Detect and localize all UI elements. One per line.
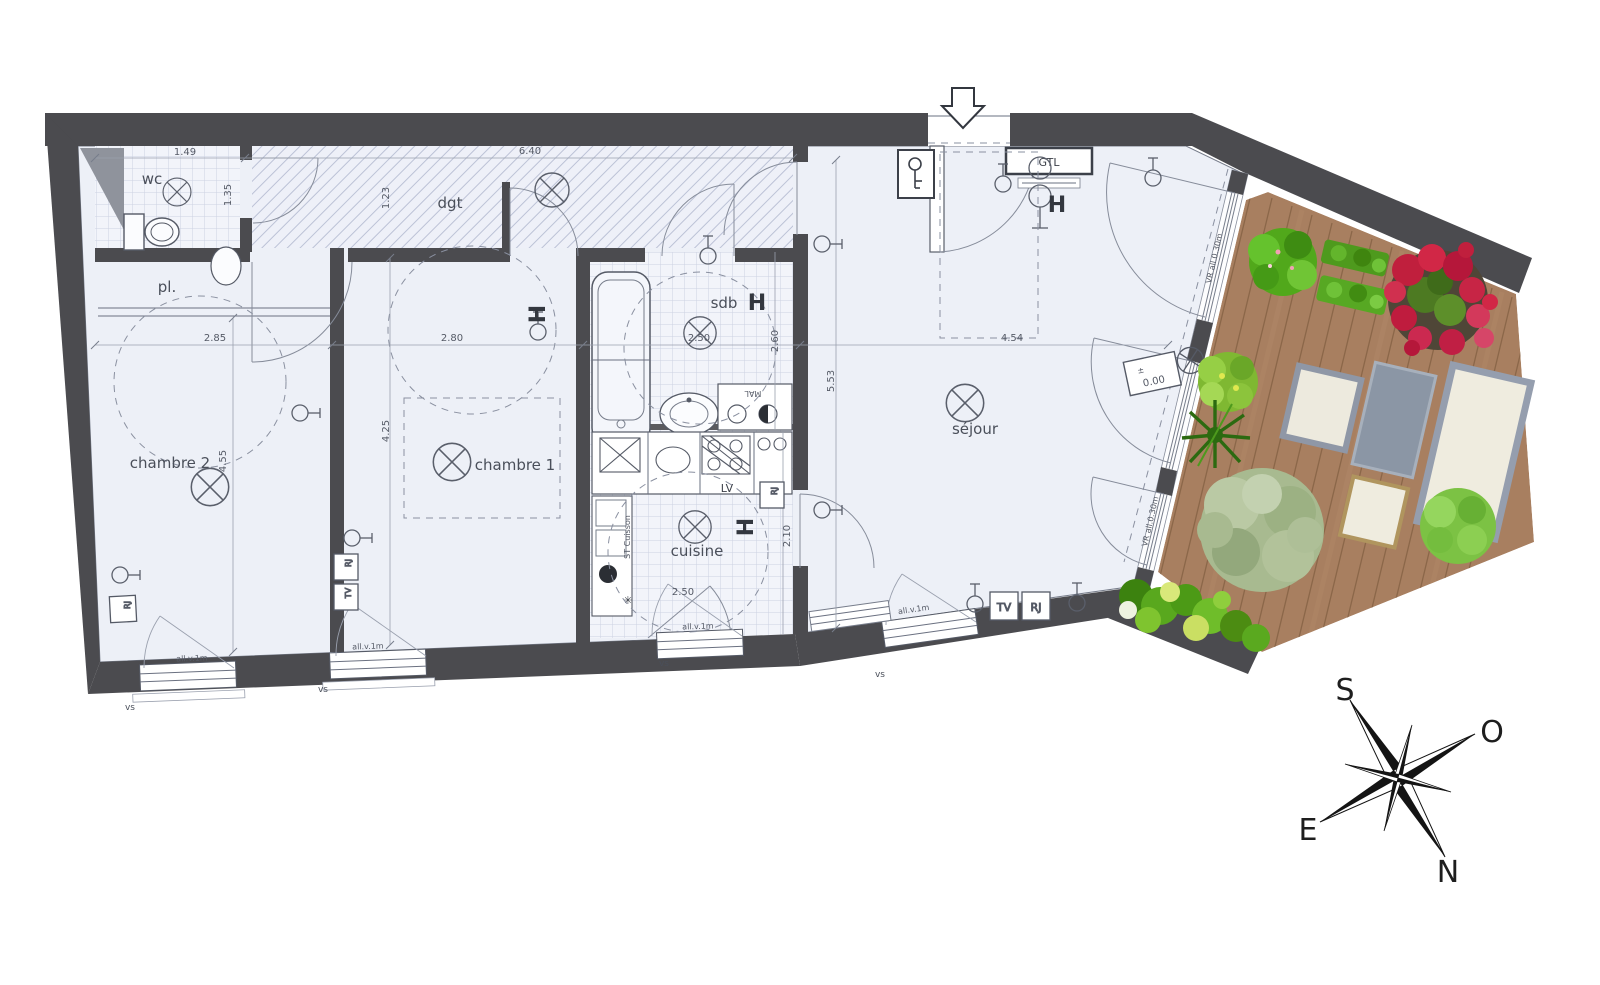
plant-bush-yellow <box>1198 352 1258 412</box>
compass-west: O <box>1480 715 1504 750</box>
vs-label-3: vs <box>659 659 669 669</box>
plant-bush-light <box>1420 488 1496 564</box>
dim-chambre2-width: 2.85 <box>204 333 226 344</box>
wc-basin <box>211 247 241 285</box>
rj-socket-chambre1: RJ <box>344 559 353 567</box>
tv-socket-sejour: TV <box>996 601 1012 614</box>
label-wc: wc <box>142 170 163 188</box>
rj-socket-chambre2: RJ <box>123 601 132 609</box>
dim-chambre1-depth: 4.25 <box>381 420 392 442</box>
compass-south: S <box>1335 673 1354 708</box>
h-mark-sdb: H <box>748 291 766 316</box>
h-mark-cuisine: H <box>734 518 759 536</box>
rj-socket-sejour: RJ <box>1031 601 1042 614</box>
label-livingroom: séjour <box>952 420 999 438</box>
dim-sejour-width: 4.54 <box>1001 333 1023 344</box>
compass-east: E <box>1299 813 1318 848</box>
vs-label-2: vs <box>318 685 328 695</box>
compass-north: N <box>1437 855 1459 890</box>
hallway-hatched-floor <box>252 146 793 248</box>
bathtub <box>592 272 650 444</box>
dim-cuisine-width: 2.50 <box>672 587 694 598</box>
h-mark-entry: H <box>1048 193 1066 218</box>
rj-socket-cuisine: RJ <box>770 487 779 495</box>
key-symbol-box <box>898 150 934 198</box>
window-cuisine <box>657 629 744 658</box>
label-chambre1: chambre 1 <box>475 456 555 474</box>
wall-kitchen-sejour <box>793 234 808 490</box>
dim-chambre2-depth: 4.55 <box>218 450 229 472</box>
tv-socket-chambre1: TV <box>344 587 353 599</box>
terrace-table <box>1283 366 1362 451</box>
label-bathroom: sdb <box>711 294 738 312</box>
dim-wc-width: 1.49 <box>174 147 196 158</box>
wall-chambre1-kitchen <box>576 248 590 644</box>
dim-wc-depth: 1.35 <box>223 184 234 206</box>
allege-label-1: all.v.1m <box>176 653 208 663</box>
dishwasher-label: LV <box>721 482 734 495</box>
window-chambre1 <box>322 649 435 690</box>
label-closet: pl. <box>158 278 176 296</box>
top-wall <box>45 113 1192 146</box>
compass-rose: S O E N <box>1299 673 1504 890</box>
plant-bush-topleft <box>1248 228 1317 296</box>
vs-label-1: vs <box>125 703 135 713</box>
label-chambre2: chambre 2 <box>130 454 210 472</box>
allege-label-2: all.v.1m <box>352 641 384 651</box>
apartment-floor <box>78 146 1240 662</box>
label-kitchen: cuisine <box>671 542 724 560</box>
vs-label-4: vs <box>875 670 885 680</box>
dim-sejour-depth: 5.53 <box>826 370 837 392</box>
dim-hall-width: 1.23 <box>381 187 392 209</box>
dim-sdb-depth: 2.60 <box>770 330 781 352</box>
window-chambre2 <box>132 661 245 702</box>
label-hallway: dgt <box>438 194 463 212</box>
cooktop-label: ST Cuisson <box>623 515 632 559</box>
oven-symbol <box>599 565 617 583</box>
allege-label-3: all.v.1m <box>682 621 714 631</box>
dim-hall-length: 6.40 <box>519 146 541 157</box>
dim-chambre1-width: 2.80 <box>441 333 463 344</box>
terrace-stool <box>1340 476 1408 547</box>
dim-cuisine-depth: 2.10 <box>782 525 793 547</box>
floor-plan: GTL <box>0 0 1600 985</box>
h-mark-chambre1: H <box>526 305 551 323</box>
